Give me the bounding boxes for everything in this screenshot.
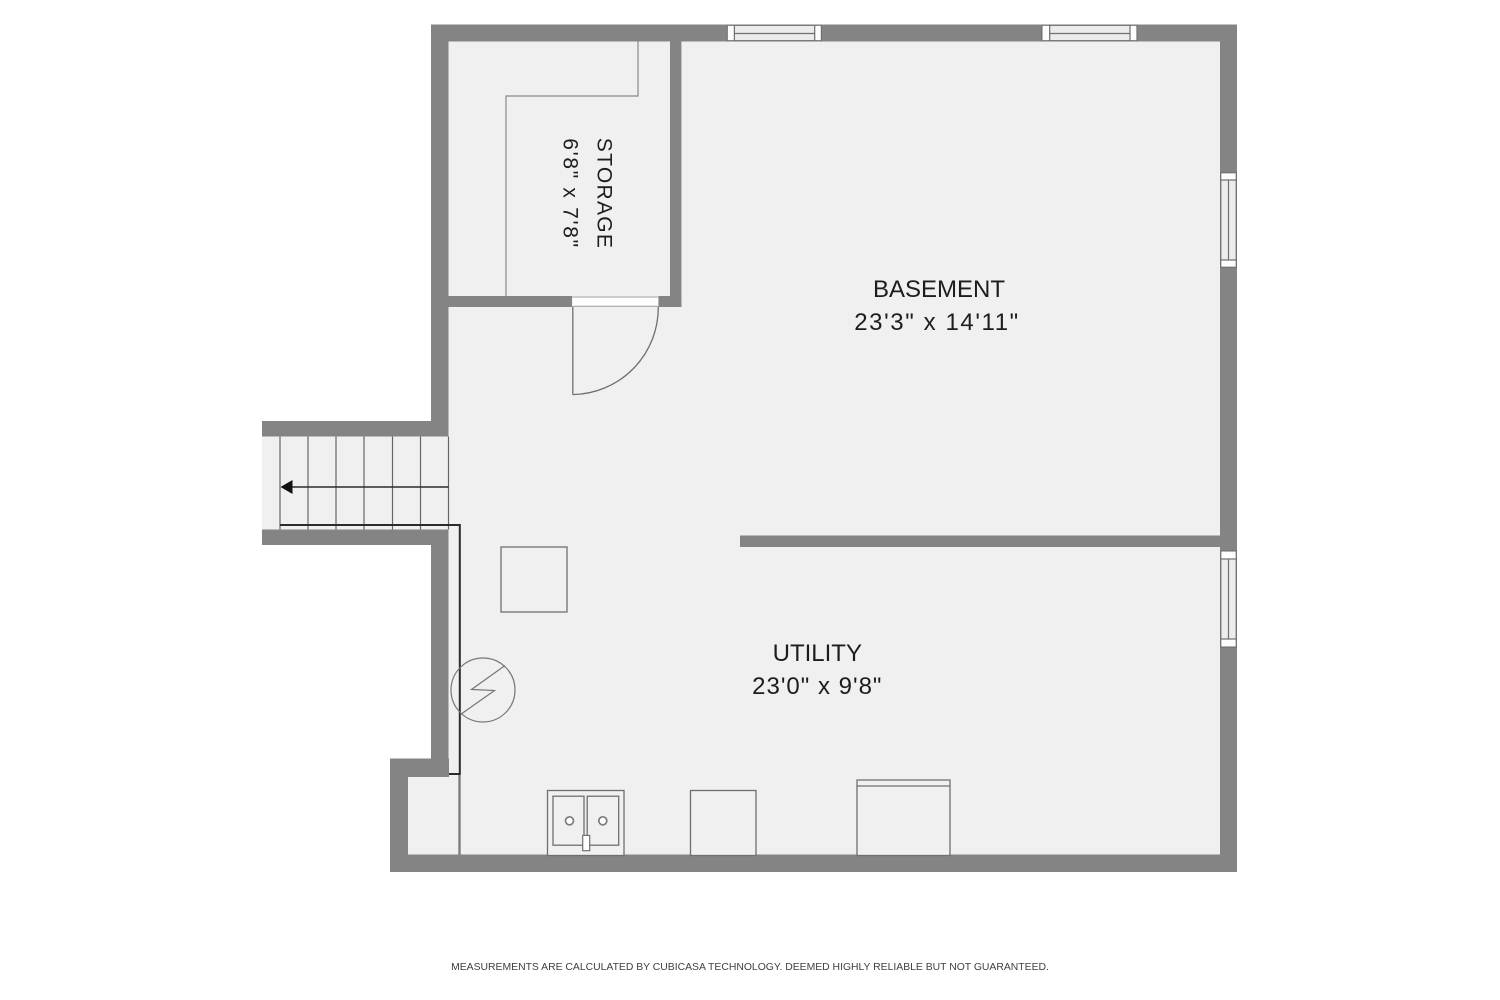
svg-text:23'3" x 14'11": 23'3" x 14'11"	[854, 309, 1020, 336]
svg-text:MEASUREMENTS ARE CALCULATED BY: MEASUREMENTS ARE CALCULATED BY CUBICASA …	[451, 962, 1049, 973]
svg-text:23'0" x 9'8": 23'0" x 9'8"	[752, 673, 882, 700]
svg-text:STORAGE: STORAGE	[593, 138, 616, 249]
svg-text:UTILITY: UTILITY	[773, 640, 862, 667]
svg-text:6'8" x 7'8": 6'8" x 7'8"	[559, 138, 582, 249]
svg-text:BASEMENT: BASEMENT	[873, 276, 1005, 303]
